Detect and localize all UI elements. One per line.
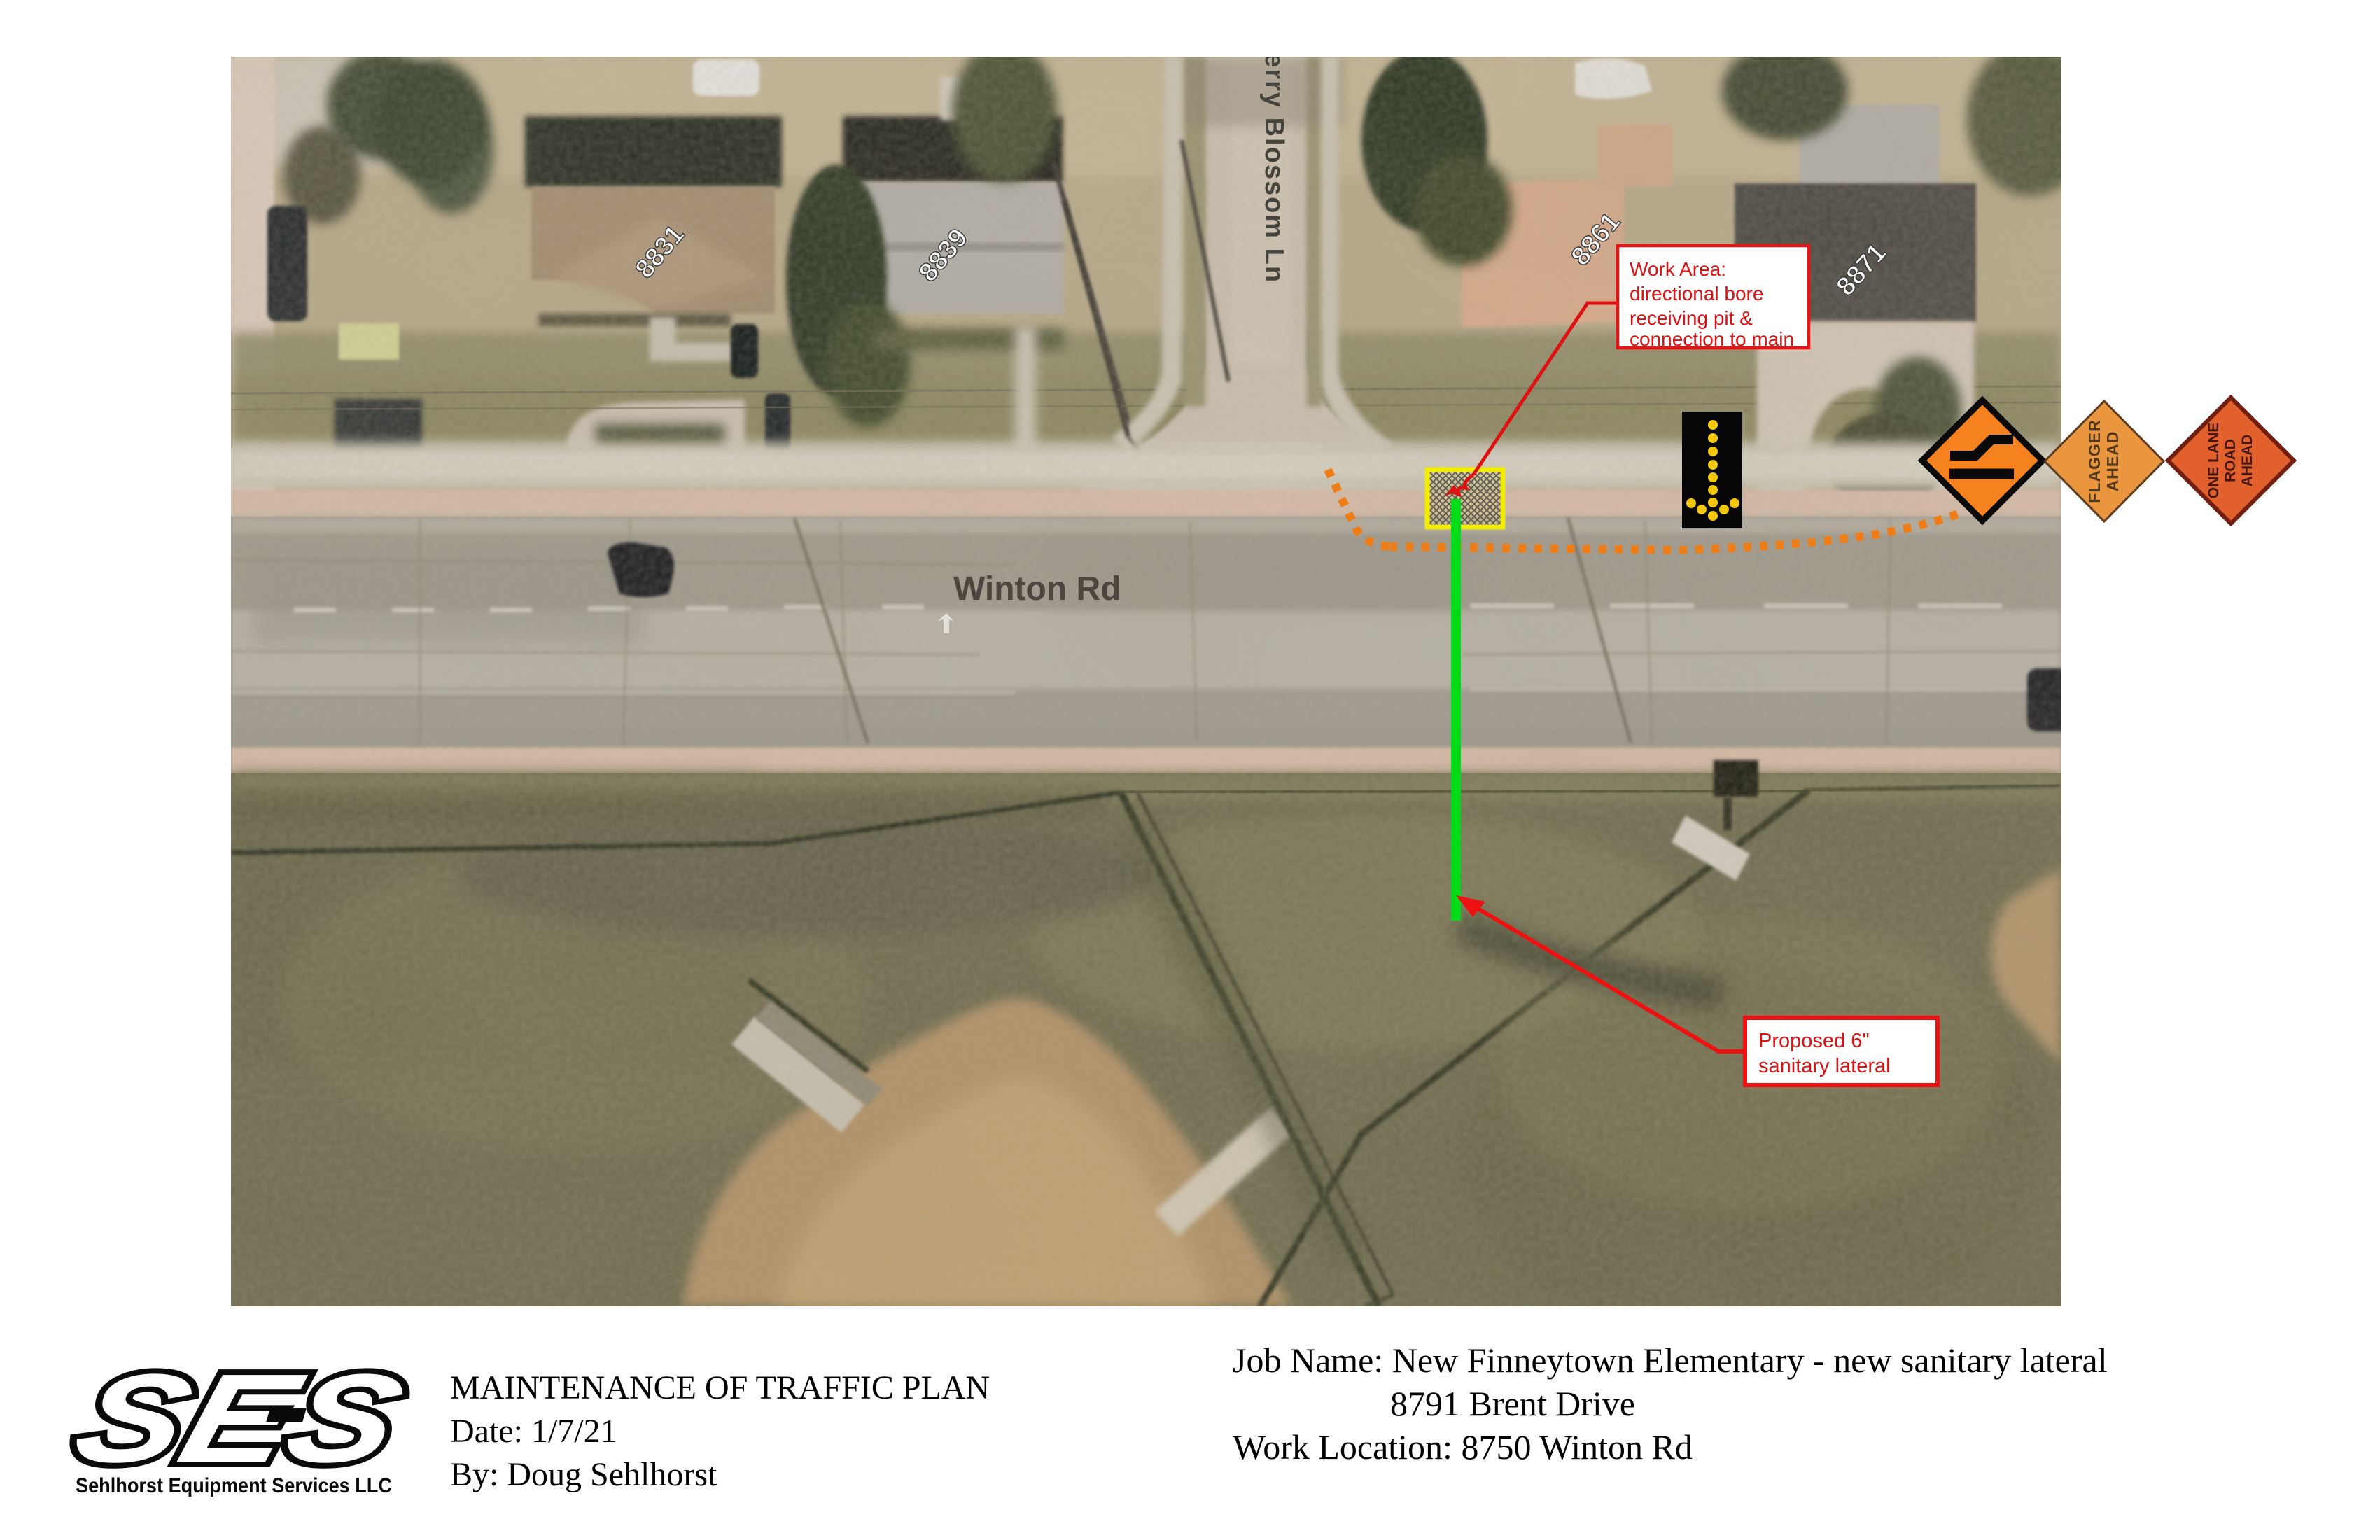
svg-text:Work Location: 8750 Winton Rd: Work Location: 8750 Winton Rd — [1233, 1427, 1693, 1466]
svg-text:By: Doug Sehlhorst: By: Doug Sehlhorst — [450, 1456, 717, 1493]
svg-text:ONE LANE: ONE LANE — [2206, 423, 2222, 499]
svg-text:receiving pit &: receiving pit & — [1630, 307, 1753, 329]
svg-text:SES: SES — [61, 1347, 418, 1488]
svg-text:AHEAD: AHEAD — [2103, 431, 2122, 492]
svg-text:FLAGGER: FLAGGER — [2085, 419, 2103, 503]
svg-text:8791 Brent Drive: 8791 Brent Drive — [1390, 1384, 1635, 1423]
svg-text:Date: 1/7/21: Date: 1/7/21 — [450, 1413, 617, 1450]
svg-text:AHEAD: AHEAD — [2239, 435, 2255, 487]
svg-text:connection to main: connection to main — [1630, 328, 1794, 350]
svg-text:Sehlhorst Equipment Services L: Sehlhorst Equipment Services LLC — [76, 1474, 392, 1497]
svg-text:MAINTENANCE OF TRAFFIC PLAN: MAINTENANCE OF TRAFFIC PLAN — [450, 1369, 990, 1406]
svg-text:herry Blossom Ln: herry Blossom Ln — [1259, 35, 1289, 283]
svg-text:Work Area:: Work Area: — [1630, 258, 1726, 280]
svg-text:sanitary lateral: sanitary lateral — [1758, 1055, 1891, 1077]
svg-text:directional bore: directional bore — [1630, 283, 1763, 304]
svg-text:ROAD: ROAD — [2222, 439, 2239, 482]
svg-text:Job Name: New Finneytown Eleme: Job Name: New Finneytown Elementary - ne… — [1233, 1340, 2108, 1380]
svg-text:Proposed 6": Proposed 6" — [1758, 1030, 1870, 1052]
svg-text:Winton Rd: Winton Rd — [953, 570, 1121, 608]
